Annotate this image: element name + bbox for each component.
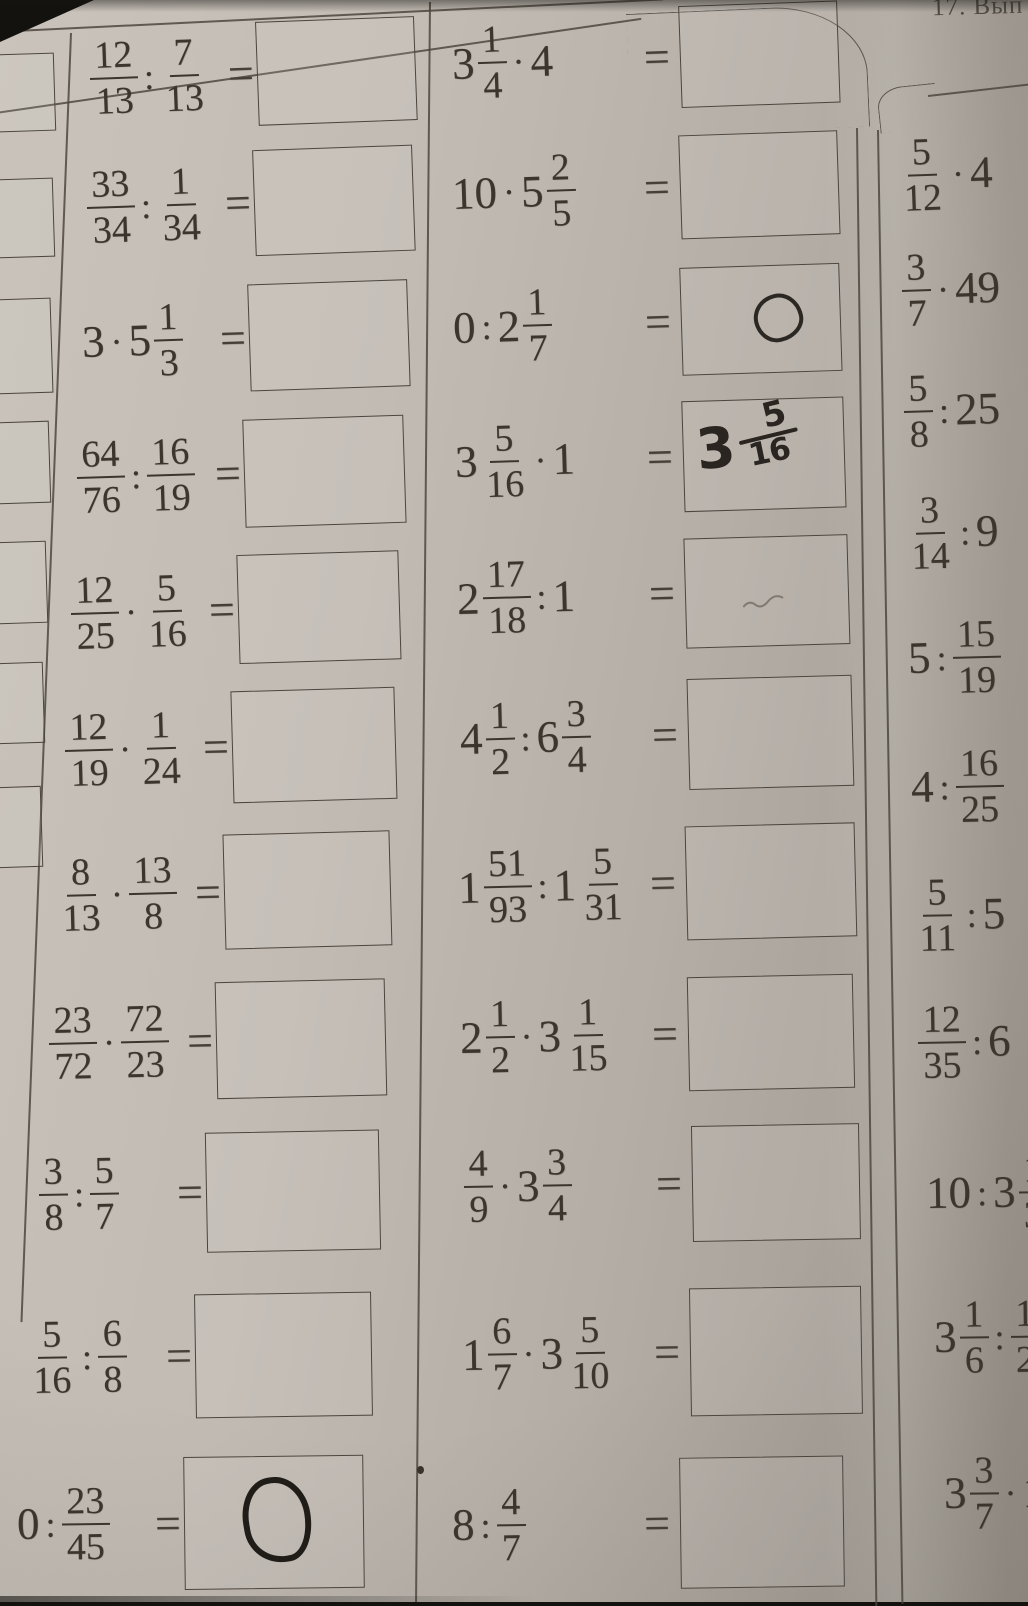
expression: 1225·516	[70, 568, 192, 656]
fraction-numerator: 1	[485, 995, 515, 1039]
problem-row: 1235:6	[917, 992, 1028, 1090]
mixed-whole: 3	[944, 1471, 967, 1516]
operator: :	[531, 868, 554, 905]
fraction-numerator: 17	[481, 555, 530, 599]
mixed-number: 513	[127, 297, 184, 383]
fraction-denominator: 8	[39, 1195, 69, 1237]
answer-box	[205, 1129, 381, 1252]
fraction-denominator: 13	[90, 78, 139, 121]
fraction: 17	[522, 283, 554, 368]
fraction-numerator: 3	[542, 1143, 572, 1186]
fraction: 14	[476, 20, 508, 105]
equals-sign: =	[194, 865, 221, 919]
fraction: 34	[561, 694, 592, 779]
mixed-whole: 2	[456, 576, 480, 622]
fraction-numerator: 15	[951, 614, 1000, 658]
mixed-whole: 5	[520, 168, 544, 214]
fraction-numerator: 5	[906, 132, 936, 176]
fraction: 37	[969, 1451, 999, 1535]
operator: :	[933, 768, 956, 804]
answer-box	[678, 1, 840, 108]
problem-row: 4:1625	[910, 736, 1028, 835]
fraction: 314	[905, 490, 955, 575]
mixed-number: 1531	[552, 842, 628, 928]
fraction: 68	[97, 1314, 127, 1398]
fraction-denominator: 8	[904, 412, 934, 454]
fraction-numerator: 2	[545, 148, 575, 192]
fraction-denominator: 7	[523, 326, 553, 368]
fraction-numerator: 72	[120, 999, 169, 1043]
expression: 21718:1	[456, 554, 576, 641]
expression: 813·138	[56, 850, 178, 937]
fraction-denominator: 35	[918, 1043, 967, 1085]
fraction: 512	[897, 132, 948, 218]
problem-row: 21718:1=	[455, 534, 848, 653]
fraction: 12	[1010, 1294, 1028, 1378]
fraction-numerator: 1	[165, 162, 195, 206]
cutoff-answer-box	[0, 178, 55, 260]
handwritten-fraction: 516	[735, 397, 801, 470]
answer-box	[230, 687, 397, 804]
problem-row: 8:47=	[451, 1456, 843, 1590]
fraction-numerator: 16	[955, 743, 1004, 787]
expression: 316:12	[933, 1294, 1028, 1379]
fraction-numerator: 23	[61, 1481, 110, 1525]
expression: 3334:134	[86, 162, 207, 250]
problem-row: 3516·1=3516	[453, 397, 844, 517]
problem-row: 412:634=	[459, 675, 853, 794]
mixed-whole: 6	[536, 714, 560, 760]
expression: 8:47	[451, 1482, 526, 1567]
fraction-denominator: 11	[914, 916, 961, 958]
operator: :	[474, 1507, 497, 1543]
fraction-numerator: 7	[168, 33, 199, 77]
fraction-numerator: 4	[463, 1145, 493, 1188]
expression: 10·525	[451, 148, 577, 236]
fraction-numerator: 12	[88, 35, 138, 80]
equals-sign: =	[656, 1157, 683, 1210]
problem-row: 212·3115=	[459, 974, 853, 1094]
fraction-denominator: 2	[486, 739, 516, 781]
fraction-denominator: 4	[562, 737, 592, 779]
fraction: 516	[142, 568, 192, 653]
fraction-numerator: 5	[37, 1315, 67, 1358]
fraction: 138	[128, 850, 178, 935]
fraction-denominator: 45	[62, 1524, 110, 1566]
fraction-numerator: 12	[917, 1000, 966, 1044]
fraction: 34	[542, 1143, 572, 1227]
equals-sign: =	[227, 47, 255, 101]
problem-row: 2372·7223=	[48, 978, 386, 1101]
workbook-photo: { "header": { "exercise_label": "17. Вып…	[0, 0, 1028, 1602]
fraction: 47	[496, 1482, 526, 1566]
integer: 1	[552, 573, 576, 619]
answer-box	[252, 145, 416, 257]
fraction-denominator: 7	[970, 1494, 999, 1535]
problem-row: 314·4=	[450, 1, 838, 114]
fraction-numerator: 23	[48, 1000, 97, 1044]
fraction-numerator: 3	[38, 1152, 68, 1196]
answer-box	[678, 130, 840, 239]
integer: 10	[451, 170, 497, 216]
integer: 10	[926, 1170, 972, 1216]
fraction-denominator: 19	[953, 657, 1002, 699]
problem-row: 167·3510=	[461, 1286, 861, 1418]
answer-box	[215, 978, 388, 1099]
fraction: 13	[153, 297, 185, 382]
answer-box	[691, 1123, 861, 1242]
expression: 0:2345	[16, 1481, 110, 1566]
operator: ·	[118, 593, 143, 630]
equals-sign: =	[155, 1496, 182, 1549]
fraction: 1213	[88, 35, 139, 121]
mixed-number: 15193	[457, 844, 533, 930]
operator: ·	[945, 155, 970, 192]
expression: 512·4	[897, 130, 994, 217]
fraction: 1235	[917, 1000, 966, 1085]
fraction: 1219	[64, 708, 114, 793]
integer: 5	[982, 891, 1005, 936]
handwritten-zero	[749, 289, 808, 347]
integer: 3	[81, 319, 105, 365]
expression: 10:313	[925, 1150, 1028, 1236]
answer-box: 3516	[681, 396, 846, 512]
fraction: 38	[38, 1152, 69, 1237]
expression: 15193:1531	[457, 842, 628, 930]
problem-row: 38:57=	[38, 1130, 379, 1254]
expression: 49·334	[463, 1143, 572, 1229]
answer-box	[679, 263, 842, 376]
answer-box	[194, 1292, 373, 1419]
fraction-denominator: 4	[478, 63, 508, 105]
expression: 167·3510	[461, 1311, 614, 1397]
equals-sign: =	[649, 856, 676, 910]
mixed-number: 313	[992, 1150, 1028, 1235]
answer-box	[183, 1455, 365, 1590]
mixed-whole: 3	[454, 439, 478, 485]
fraction: 516	[27, 1315, 76, 1400]
equals-sign: =	[224, 176, 252, 230]
operator: :	[137, 58, 160, 95]
problem-row: 0:217=	[451, 263, 840, 381]
answer-box	[247, 279, 410, 391]
printed-dot	[417, 1466, 424, 1474]
cutoff-answer-box	[0, 541, 48, 626]
fraction-numerator: 6	[487, 1312, 517, 1355]
problem-row: 511:5	[913, 865, 1028, 963]
mixed-number: 314	[451, 20, 508, 106]
problem-row: 512·4	[896, 122, 1028, 223]
mixed-whole: 1	[457, 865, 481, 911]
expression: 6476:1619	[76, 432, 197, 520]
equals-sign: =	[202, 720, 229, 774]
fraction-denominator: 25	[71, 613, 120, 655]
mixed-whole: 3	[517, 1163, 540, 1208]
expression: 38:57	[38, 1151, 120, 1237]
mixed-whole: 3	[993, 1170, 1016, 1215]
problem-row: 6476:1619=	[75, 415, 404, 531]
fraction-denominator: 23	[121, 1042, 170, 1084]
problem-row: 10:313	[925, 1143, 1028, 1241]
fraction-numerator: 3	[969, 1451, 999, 1494]
integer: 49	[954, 265, 1000, 311]
integer: 1	[552, 436, 576, 482]
fraction-denominator: 16	[28, 1358, 77, 1400]
fraction-numerator: 8	[65, 853, 95, 897]
fraction-denominator: 13	[160, 76, 209, 119]
fraction-denominator: 4	[543, 1186, 573, 1227]
cutoff-answer-box	[0, 298, 53, 396]
fraction: 134	[156, 162, 207, 248]
fraction-denominator: 7	[902, 291, 932, 333]
fraction-denominator: 72	[49, 1043, 98, 1085]
expression: 2372·7223	[48, 999, 170, 1086]
equals-sign: =	[186, 1013, 213, 1067]
operator: ·	[105, 876, 130, 913]
problem-row: 314:9	[905, 482, 1028, 581]
problem-row: 0:2345=	[16, 1455, 363, 1590]
fraction-numerator: 3	[561, 694, 591, 738]
fraction: 1718	[481, 555, 531, 640]
fraction-denominator: 12	[898, 175, 947, 218]
answer-box	[687, 974, 855, 1091]
photo-top-edge-shadow	[0, 0, 1028, 12]
answer-box	[679, 1456, 845, 1589]
fraction: 1619	[146, 432, 197, 517]
equals-sign: =	[651, 1007, 678, 1061]
fraction-numerator: 1	[1010, 1294, 1028, 1337]
fraction-denominator: 8	[138, 894, 168, 936]
problem-row: 3·513=	[80, 279, 408, 395]
integer: 1	[1022, 1470, 1028, 1515]
expression: 3516·1	[454, 417, 576, 505]
problem-row: 316:12	[933, 1288, 1028, 1385]
fraction: 124	[136, 706, 186, 791]
mixed-whole: 4	[459, 716, 483, 762]
equals-sign: =	[644, 295, 672, 349]
equals-sign: =	[166, 1329, 193, 1382]
fraction: 115	[563, 993, 613, 1078]
fraction-denominator: 3	[1019, 1193, 1028, 1234]
mixed-whole: 5	[128, 318, 152, 364]
fraction-numerator: 5	[575, 1311, 605, 1354]
fraction: 16	[959, 1295, 989, 1379]
operator: ·	[104, 323, 129, 360]
mixed-number: 634	[535, 694, 592, 779]
fraction-numerator: 1	[959, 1295, 989, 1338]
expression: 0:217	[452, 283, 554, 370]
expression: 412:634	[459, 694, 592, 781]
fraction-numerator: 12	[64, 708, 113, 752]
mixed-number: 316	[933, 1295, 989, 1380]
operator: ·	[514, 1018, 539, 1054]
fraction-numerator: 5	[151, 568, 181, 612]
cutoff-answer-box	[0, 662, 45, 745]
problem-row: 3334:134=	[85, 145, 413, 260]
integer: 4	[910, 764, 934, 809]
expression: 5:1519	[907, 614, 1002, 700]
mixed-whole: 2	[497, 303, 521, 349]
fraction-denominator: 6	[960, 1338, 990, 1379]
expression: 516:68	[27, 1314, 127, 1400]
fraction-numerator: 1	[145, 706, 175, 750]
mixed-number: 3115	[538, 993, 613, 1079]
integer: 4	[530, 38, 554, 84]
fraction-denominator: 34	[157, 205, 206, 248]
equals-sign: =	[644, 1496, 671, 1549]
mixed-number: 412	[459, 696, 516, 781]
problem-row: 337·1	[943, 1444, 1028, 1541]
fraction-denominator: 25	[956, 786, 1005, 828]
equals-sign: =	[214, 446, 242, 500]
fraction-numerator: 4	[496, 1482, 526, 1525]
expression: 1219·124	[64, 706, 186, 793]
integer: 0	[452, 305, 476, 351]
fraction: 511	[913, 873, 961, 958]
fraction-denominator: 19	[147, 475, 196, 517]
answer-box	[222, 830, 392, 949]
mixed-whole: 3	[540, 1331, 563, 1376]
fraction-numerator: 51	[482, 844, 531, 888]
fraction-numerator: 1	[476, 20, 506, 64]
fraction-numerator: 16	[146, 432, 195, 476]
fraction: 516	[479, 418, 529, 503]
problem-row: 37·49	[900, 238, 1028, 338]
fraction-numerator: 5	[903, 369, 933, 413]
fraction: 813	[56, 852, 106, 937]
integer: 5	[907, 635, 931, 681]
fraction-denominator: 10	[566, 1354, 615, 1396]
fraction-denominator: 9	[464, 1187, 494, 1228]
cutoff-answer-box	[0, 53, 56, 134]
operator: :	[966, 1023, 989, 1059]
fraction-denominator: 16	[143, 611, 192, 653]
fraction-numerator: 5	[587, 842, 617, 886]
expression: 337·1	[943, 1450, 1028, 1535]
fraction-numerator: 1	[1018, 1150, 1028, 1193]
fraction-denominator: 76	[77, 477, 126, 519]
problem-row: 1213:713=	[88, 16, 416, 130]
mixed-whole: 3	[934, 1315, 957, 1360]
operator: :	[930, 639, 953, 676]
mixed-number: 217	[496, 283, 553, 369]
mixed-whole: 3	[538, 1013, 561, 1058]
fraction: 531	[578, 842, 628, 927]
fraction-numerator: 3	[914, 490, 944, 534]
fraction: 3334	[86, 164, 137, 250]
mixed-whole: 1	[553, 863, 577, 909]
fraction-denominator: 2	[486, 1038, 516, 1080]
fraction-denominator: 3	[154, 340, 184, 382]
problem-row: 1219·124=	[63, 687, 395, 806]
fraction-denominator: 7	[488, 1355, 518, 1396]
integer: 8	[452, 1503, 475, 1548]
fraction-denominator: 13	[57, 895, 106, 937]
fraction: 6476	[76, 435, 127, 520]
fraction-numerator: 5	[489, 419, 519, 463]
operator: :	[971, 1174, 994, 1210]
operator: :	[932, 392, 955, 429]
answer-box	[255, 16, 418, 126]
fraction-denominator: 93	[484, 887, 533, 929]
problem-row: 5:1519	[907, 607, 1028, 706]
equals-sign: =	[176, 1165, 203, 1218]
fraction: 25	[545, 148, 577, 233]
fraction: 510	[565, 1311, 614, 1396]
fraction: 2372	[48, 1000, 98, 1085]
fraction-numerator: 1	[484, 696, 514, 740]
equals-sign: =	[651, 707, 678, 761]
operator: ·	[516, 1336, 541, 1372]
operator: :	[988, 1318, 1011, 1354]
fraction: 5193	[482, 844, 532, 929]
operator: :	[475, 309, 498, 346]
mixed-number: 3510	[540, 1311, 615, 1396]
expression: 58:25	[903, 367, 1002, 454]
operator: ·	[930, 271, 955, 308]
operator: :	[953, 514, 976, 551]
fraction: 58	[903, 369, 935, 454]
fraction-denominator: 5	[546, 191, 576, 233]
fraction-numerator: 5	[89, 1151, 119, 1195]
expression: 511:5	[913, 872, 1006, 958]
operator: ·	[998, 1475, 1022, 1511]
integer: 0	[17, 1502, 40, 1547]
mixed-number: 334	[516, 1143, 572, 1228]
mixed-number: 212	[459, 995, 515, 1080]
mixed-number: 167	[461, 1312, 517, 1397]
answer-box	[236, 550, 401, 664]
cutoff-answer-box	[0, 421, 51, 506]
fraction: 57	[89, 1151, 120, 1236]
fraction-denominator: 24	[137, 749, 186, 791]
integer: 6	[988, 1018, 1011, 1063]
fraction-numerator: 12	[70, 570, 119, 614]
fraction: 67	[487, 1312, 517, 1396]
integer: 25	[954, 386, 1000, 432]
expression: 1213:713	[88, 33, 209, 121]
operator: :	[68, 1176, 91, 1212]
fraction: 1225	[70, 570, 120, 655]
fraction-denominator: 34	[87, 207, 136, 250]
answer-box	[683, 534, 850, 649]
operator: ·	[506, 43, 531, 80]
fraction-numerator: 3	[901, 248, 931, 292]
fraction: 12	[485, 995, 516, 1080]
pencil-scribble	[741, 595, 787, 612]
fraction-numerator: 1	[522, 283, 552, 327]
fraction: 49	[463, 1145, 493, 1229]
mixed-whole: 1	[462, 1332, 485, 1377]
mixed-number: 21718	[456, 555, 532, 641]
expression: 4:1625	[910, 743, 1004, 829]
fraction: 12	[484, 696, 515, 781]
operator: :	[39, 1506, 61, 1542]
expression: 1235:6	[917, 999, 1011, 1085]
cutoff-answer-box	[0, 786, 43, 869]
operator: :	[124, 458, 147, 495]
fraction-denominator: 8	[98, 1357, 128, 1398]
expression: 212·3115	[459, 993, 613, 1080]
fraction-denominator: 7	[90, 1194, 120, 1236]
problem-row: 516:68=	[27, 1292, 371, 1419]
mixed-whole: 3	[451, 41, 475, 87]
answer-box	[685, 822, 858, 940]
answer-box	[686, 675, 854, 790]
fraction: 713	[158, 33, 209, 119]
problem-row: 49·334=	[463, 1123, 859, 1244]
expression: 314:9	[905, 489, 1000, 576]
